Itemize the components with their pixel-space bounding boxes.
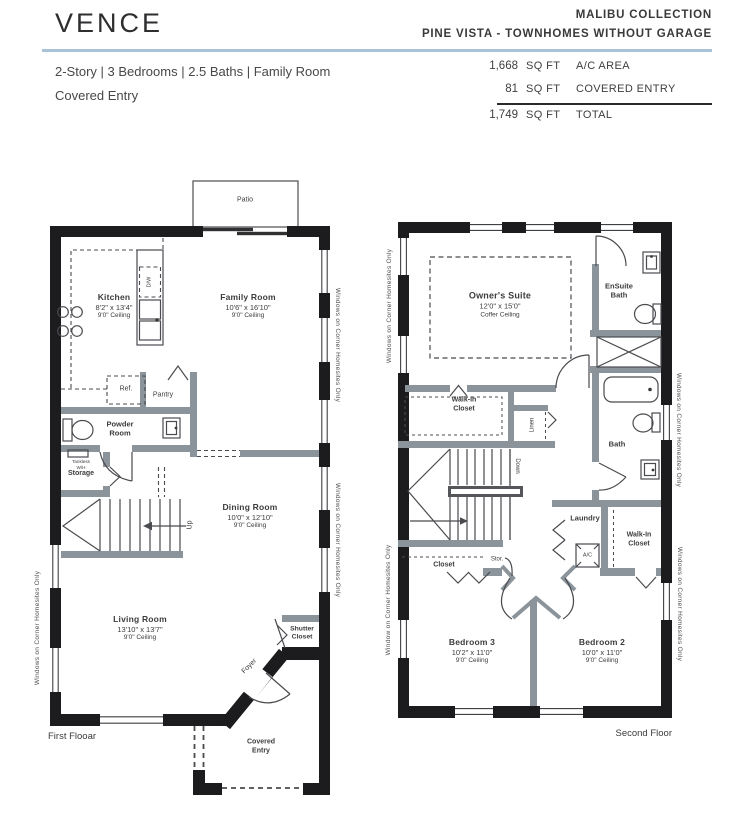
second-floor-tag: Second Floor <box>615 728 672 739</box>
sf-note-left-1: Windows on Corner Homesites Only <box>386 249 394 363</box>
room-dims: 8'2" x 13'4" <box>96 303 133 312</box>
front-door-opening <box>248 672 266 695</box>
room-name: Walk-In <box>627 531 652 540</box>
floorplan-sheet: VENCE MALIBU COLLECTION PINE VISTA - TOW… <box>0 0 749 832</box>
bath-label: Bath <box>609 439 626 448</box>
up-label: Up <box>187 521 196 530</box>
sf-note-left-2: Window on Corner Homesites Only <box>385 545 393 656</box>
sliding-door <box>203 228 287 235</box>
room-name: EnSuite <box>605 282 633 291</box>
room-name: Family Room <box>220 292 276 303</box>
powder-faucet-dot <box>175 427 178 430</box>
up-arrowhead <box>143 522 152 530</box>
room-name: Bath <box>605 291 633 300</box>
ac-label: A/C <box>583 552 592 559</box>
room-name: Entry <box>247 747 275 756</box>
shutter-closet-label: Shutter Closet <box>290 626 314 643</box>
room-dims: 13'10" x 13'7" <box>113 625 167 634</box>
ff-note-right-2: Windows on Corner Homesites Only <box>333 483 341 597</box>
bedroom2-label: Bedroom 2 10'0" x 11'0" 9'0" Ceiling <box>579 637 625 665</box>
first-floor-tag: First Flooar <box>48 731 96 742</box>
ff-covered-entry-dashed <box>195 726 304 788</box>
room-ceiling: 9'0" Ceiling <box>222 522 277 530</box>
room-ceiling: 9'0" Ceiling <box>96 312 133 320</box>
room-name: Bedroom 2 <box>579 637 625 648</box>
sf-note-right-2: Windows on Corner Homesites Only <box>675 547 683 661</box>
room-name: Walk-In <box>452 396 477 405</box>
ensuite-bath-label: EnSuite Bath <box>605 282 633 301</box>
sf-door-leaves <box>502 566 575 618</box>
room-name: Kitchen <box>96 292 133 303</box>
laundry-label: Laundry <box>570 513 600 522</box>
ff-note-left: Windows on Corner Homesites Only <box>34 571 42 685</box>
room-name: Dining Room <box>222 502 277 513</box>
dishwasher-label: D/W <box>147 277 154 288</box>
kitchen-label: Kitchen 8'2" x 13'4" 9'0" Ceiling <box>96 292 133 320</box>
bath-sink-dot <box>652 469 655 472</box>
patio-label: Patio <box>237 197 253 206</box>
floorplan-svg <box>0 0 749 832</box>
stor-label: Stor. <box>491 556 503 564</box>
room-ceiling: 9'0" Ceiling <box>579 657 625 665</box>
bedroom3-label: Bedroom 3 10'2" x 11'0" 9'0" Ceiling <box>449 637 495 665</box>
room-ceiling: 9'0" Ceiling <box>113 634 167 642</box>
room-ceiling: 9'0" Ceiling <box>220 312 276 320</box>
pantry-label: Pantry <box>153 392 173 401</box>
room-name: Owner's Suite <box>469 291 531 302</box>
owners-suite-label: Owner's Suite 12'0" x 15'0" Coffer Ceili… <box>469 291 531 320</box>
room-name: Powder <box>106 420 133 429</box>
ensuite-sink-dot <box>650 255 653 258</box>
covered-entry-label: Covered Entry <box>247 738 275 756</box>
tub-faucet-dot <box>648 388 652 392</box>
stair-rail-gap <box>451 489 520 494</box>
room-name: Shutter <box>290 626 314 634</box>
ff-interior-walls <box>61 372 319 622</box>
room-dims: 10'2" x 11'0" <box>449 648 495 657</box>
sf-note-right-1: Windows on Corner Homesites Only <box>674 373 682 487</box>
ref-label: Ref. <box>120 386 133 395</box>
room-dims: 12'0" x 15'0" <box>469 302 531 311</box>
storage-line: Storage <box>68 470 94 479</box>
room-name: Closet <box>627 540 652 549</box>
room-name: Room <box>106 429 133 438</box>
storage-label: Tankless W/H Storage <box>68 459 94 479</box>
room-dims: 10'6" x 16'10" <box>220 303 276 312</box>
linen-label: Linen <box>529 418 537 433</box>
ff-exterior-walls <box>50 226 330 795</box>
walkin-closet-1-label: Walk-In Closet <box>452 396 477 414</box>
living-room-label: Living Room 13'10" x 13'7" 9'0" Ceiling <box>113 614 167 642</box>
dining-room-label: Dining Room 10'0" x 12'10" 9'0" Ceiling <box>222 502 277 530</box>
ff-note-right-1: Windows on Corner Homesites Only <box>333 288 341 402</box>
down-label: Down <box>512 458 520 473</box>
room-dims: 10'0" x 11'0" <box>579 648 625 657</box>
room-name: Living Room <box>113 614 167 625</box>
room-name: Closet <box>290 634 314 642</box>
powder-room-label: Powder Room <box>106 420 133 439</box>
walkin-closet-2-label: Walk-In Closet <box>627 531 652 549</box>
room-name: Bedroom 3 <box>449 637 495 648</box>
room-ceiling: Coffer Ceiling <box>469 311 531 319</box>
room-ceiling: 9'0" Ceiling <box>449 657 495 665</box>
kitchen-faucet-dot <box>155 318 159 322</box>
family-room-label: Family Room 10'6" x 16'10" 9'0" Ceiling <box>220 292 276 320</box>
room-name: Covered <box>247 738 275 747</box>
first-floor-drawing <box>50 181 330 795</box>
room-name: Closet <box>452 405 477 414</box>
room-dims: 10'0" x 12'10" <box>222 513 277 522</box>
closet-label: Closet <box>433 562 454 571</box>
